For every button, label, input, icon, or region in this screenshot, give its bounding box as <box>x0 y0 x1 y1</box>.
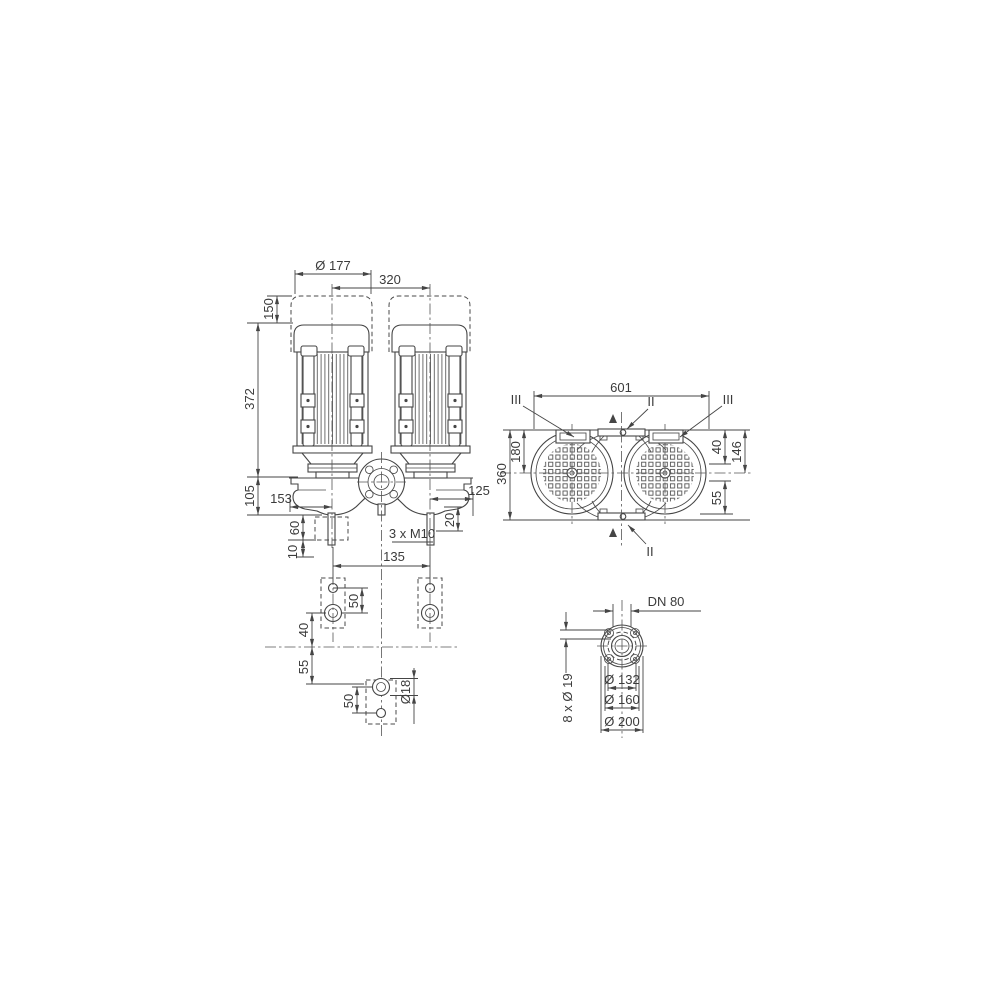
dim-hole-diameter: Ø18 <box>390 668 418 724</box>
flow-arrow-bottom <box>609 528 617 537</box>
dim-motor-diameter: Ø 177 <box>295 258 371 294</box>
dim-label-125: 125 <box>468 483 490 498</box>
dim-label-bolt-holes: 8 x Ø 19 <box>560 673 575 722</box>
dim-label-372: 372 <box>242 388 257 410</box>
dim-label-dn80: DN 80 <box>648 594 685 609</box>
section-label-III-left: III <box>511 392 522 407</box>
top-view: 601 III III II II 360 180 40 <box>494 380 752 559</box>
dim-label-150: 150 <box>261 298 276 320</box>
right-motor <box>389 296 470 478</box>
technical-drawing-page: Ø 177 320 150 372 105 153 <box>0 0 1000 1000</box>
section-label-II-top: II <box>647 394 654 409</box>
dim-125: 125 <box>430 483 490 516</box>
dim-10: 10 <box>285 540 314 559</box>
dim-label-360: 360 <box>494 463 509 485</box>
dim-label-50-upper: 50 <box>346 594 361 608</box>
dim-label-10: 10 <box>285 545 300 559</box>
flange-view: DN 80 8 x Ø 19 Ø 132 Ø 160 Ø 200 <box>560 594 701 738</box>
dim-label-135: 135 <box>383 549 405 564</box>
dim-153: 153 <box>270 491 332 512</box>
flow-arrow-top <box>609 414 617 423</box>
section-marker-bottom: II <box>628 525 654 559</box>
thread-note-label: 3 x M10 <box>389 526 435 541</box>
dim-label-180: 180 <box>508 441 523 463</box>
dim-label-132: Ø 132 <box>604 672 639 687</box>
dim-label-40-top: 40 <box>709 440 724 454</box>
foot-pad-bottom <box>366 679 396 725</box>
dim-50-lower: 50 <box>341 687 377 713</box>
dim-label-160: Ø 160 <box>604 692 639 707</box>
dim-372: 372 <box>242 323 298 477</box>
dim-55-foot: 55 <box>296 647 364 684</box>
dim-label-motor-diameter: Ø 177 <box>315 258 350 273</box>
pump-dimension-drawing: Ø 177 320 150 372 105 153 <box>0 0 1000 1000</box>
thread-note: 3 x M10 <box>389 526 435 542</box>
dim-label-153: 153 <box>270 491 292 506</box>
dim-label-hole-diameter: Ø18 <box>398 680 413 705</box>
dim-label-105: 105 <box>242 485 257 507</box>
dim-label-55-top: 55 <box>709 491 724 505</box>
dim-label-55-foot: 55 <box>296 660 311 674</box>
dim-dn80: DN 80 <box>593 594 701 627</box>
dim-label-20: 20 <box>442 513 457 527</box>
dim-label-200: Ø 200 <box>604 714 639 729</box>
dim-150: 150 <box>247 296 293 323</box>
front-view: Ø 177 320 150 372 105 153 <box>242 258 490 737</box>
dim-40-top: 40 <box>709 430 731 464</box>
left-motor <box>291 296 372 478</box>
dim-label-601: 601 <box>610 380 632 395</box>
dim-label-146: 146 <box>729 441 744 463</box>
dim-146: 146 <box>729 430 745 473</box>
dim-label-motor-spacing: 320 <box>379 272 401 287</box>
dim-label-50-lower: 50 <box>341 694 356 708</box>
foot-view: 50 40 55 50 Ø18 <box>265 574 460 724</box>
dim-label-60: 60 <box>287 521 302 535</box>
dim-label-40-foot: 40 <box>296 623 311 637</box>
section-label-II-bottom: II <box>646 544 653 559</box>
section-marker-top: II <box>627 394 655 429</box>
section-label-III-right: III <box>723 392 734 407</box>
dim-60: 60 <box>287 515 316 540</box>
dim-55-top: 55 <box>700 481 733 514</box>
